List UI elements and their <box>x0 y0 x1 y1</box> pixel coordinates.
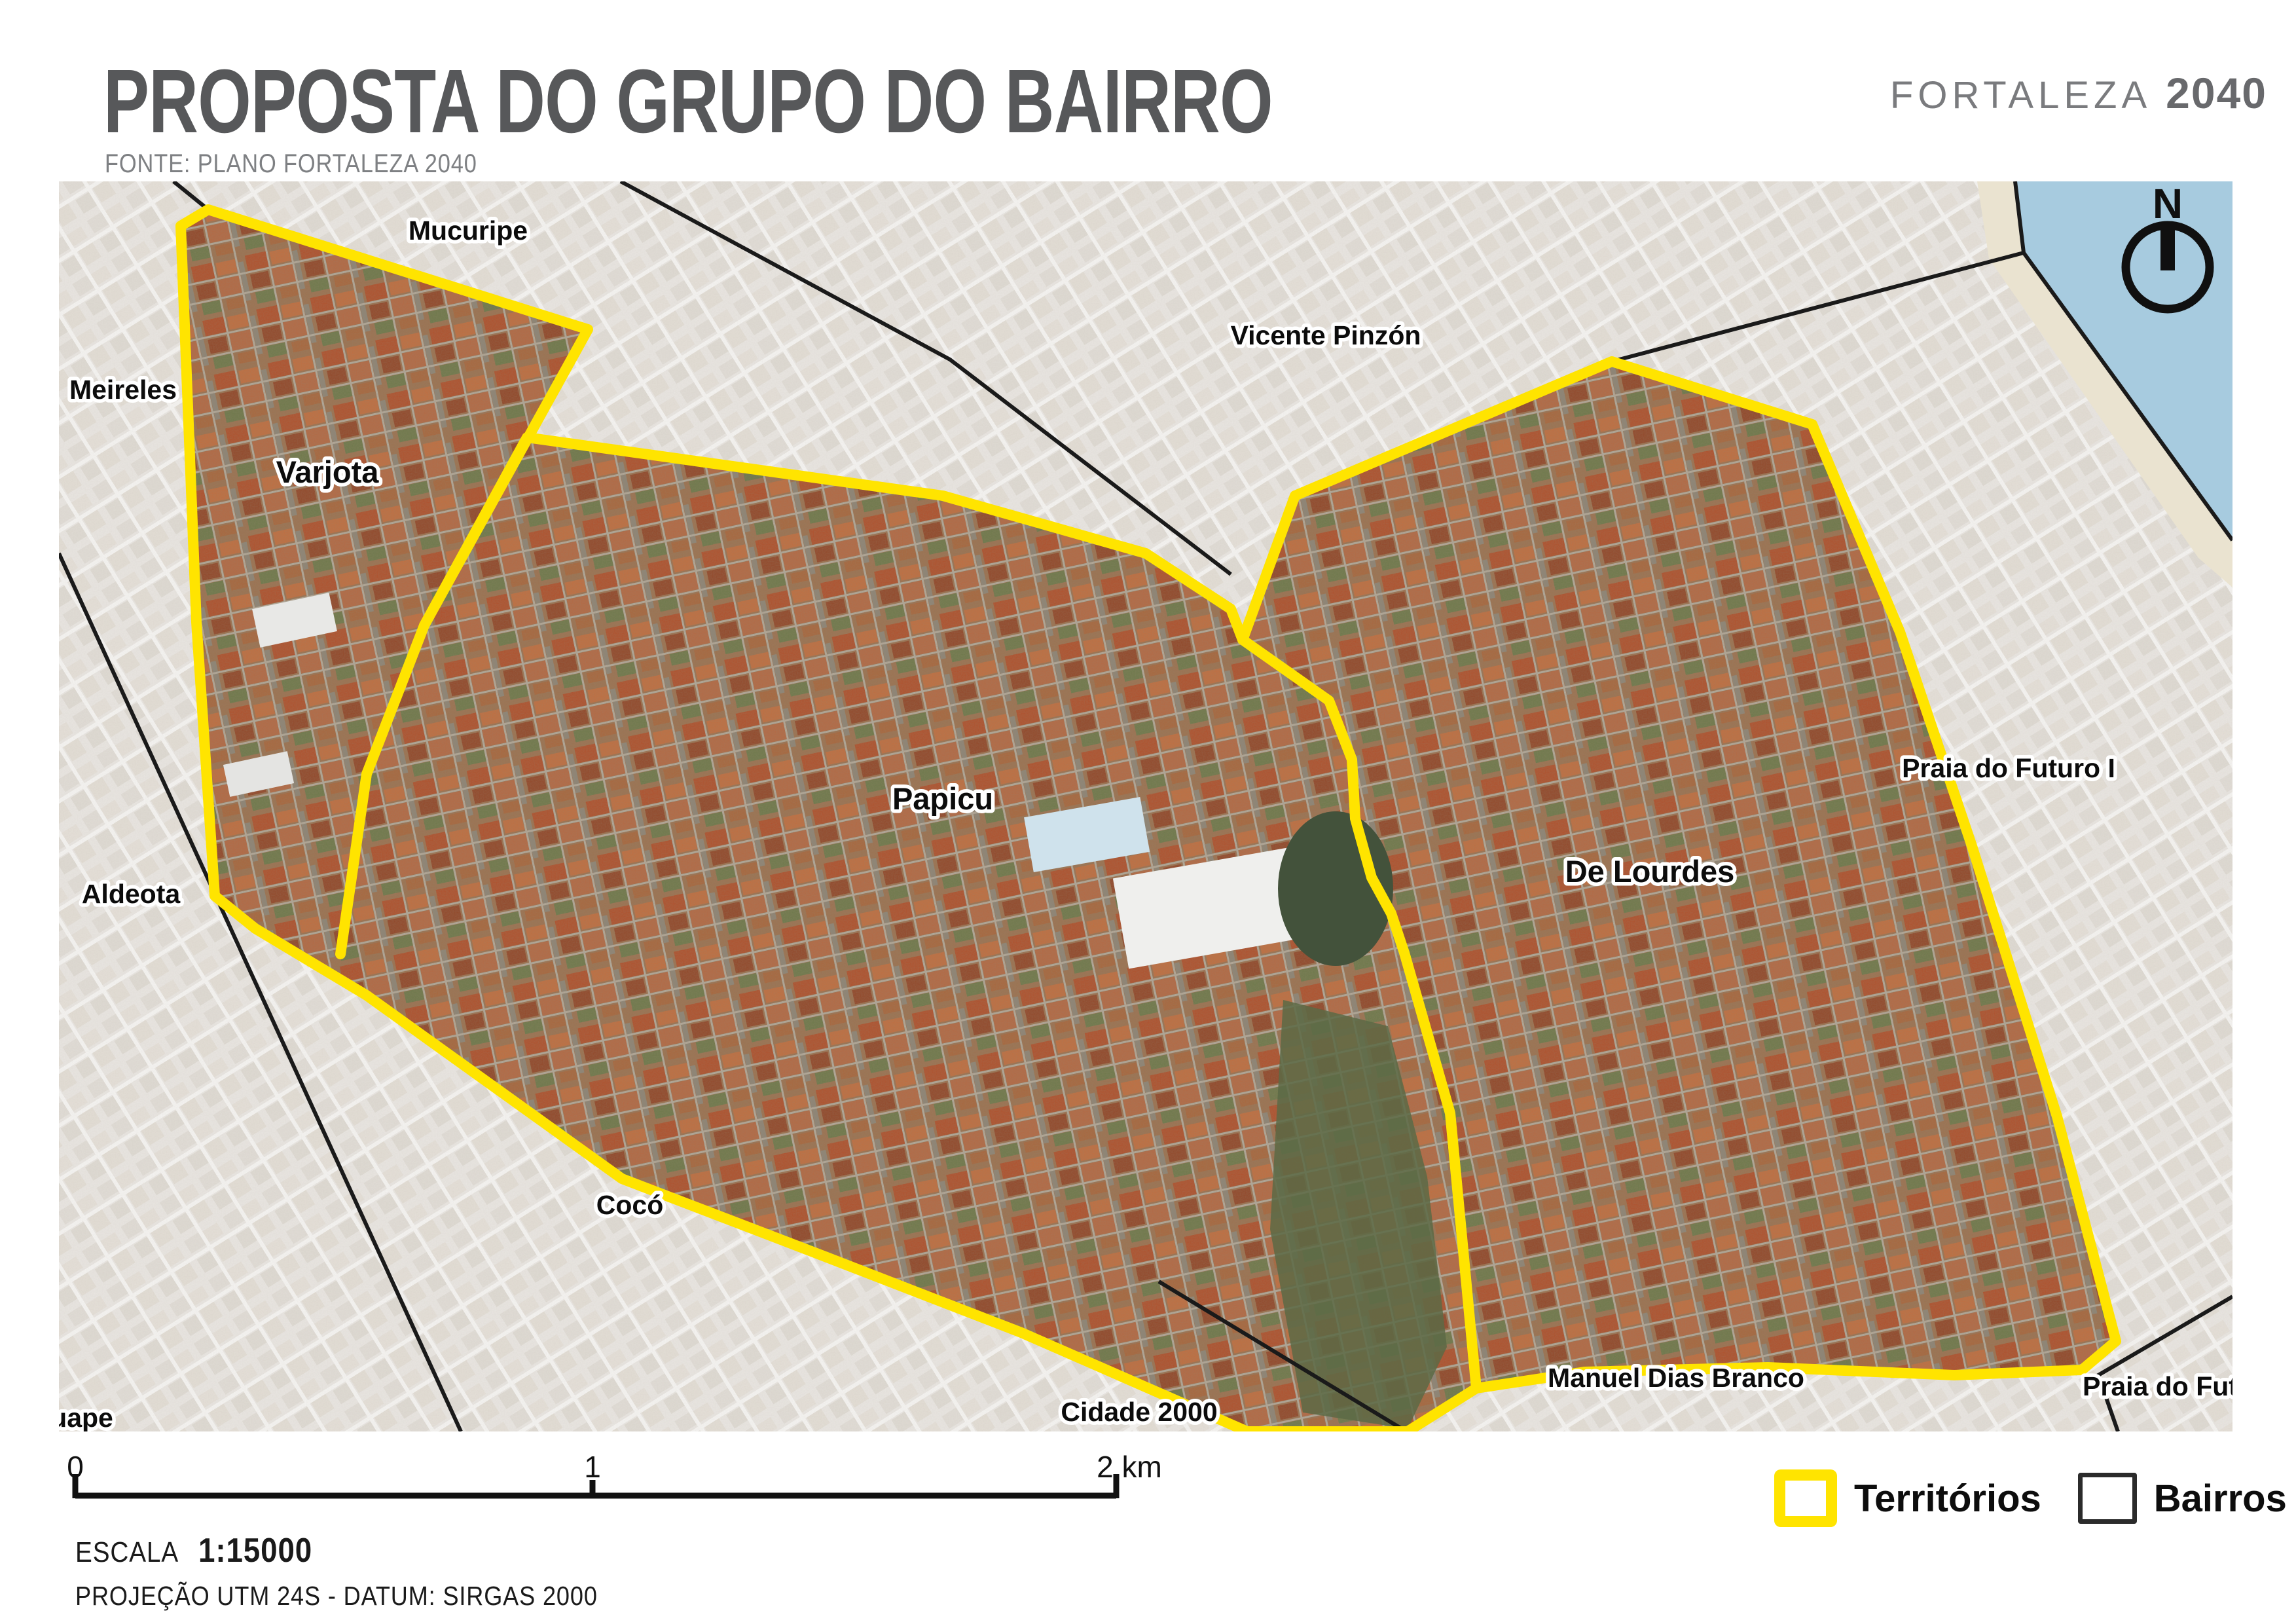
map-canvas: N Mucuripe Meireles Vicente Pinzón Aldeo… <box>59 181 2232 1431</box>
brand-logo: FORTALEZA 2040 <box>1890 68 2267 118</box>
map-label-mucuripe: Mucuripe <box>409 215 528 246</box>
scale-bar: 0 1 2 km <box>52 1438 1165 1510</box>
legend: Territórios Bairros <box>1774 1467 2287 1530</box>
brand-year: 2040 <box>2166 68 2267 118</box>
map-label-papicu: Papicu <box>892 781 993 816</box>
territories-swatch <box>1774 1469 1837 1527</box>
bairros-swatch <box>2078 1473 2137 1524</box>
scale-value: 1:15000 <box>198 1532 312 1570</box>
map-label-meireles: Meireles <box>69 375 177 405</box>
map-label-cidade-2000: Cidade 2000 <box>1061 1397 1217 1427</box>
map-label-coco: Cocó <box>596 1190 664 1220</box>
map-label-praia-do-futuro-i: Praia do Futuro I <box>1902 753 2115 783</box>
scale-text: ESCALA1:15000 <box>75 1531 312 1570</box>
page-source: FONTE: PLANO FORTALEZA 2040 <box>105 149 477 179</box>
map-label-manuel-dias-branco: Manuel Dias Branco <box>1548 1363 1804 1393</box>
map-label-praia-do-futuro-clipped: Praia do Futur <box>2083 1371 2232 1401</box>
scale-label: ESCALA <box>75 1536 179 1568</box>
projection-note: PROJEÇÃO UTM 24S - DATUM: SIRGAS 2000 <box>75 1581 598 1612</box>
scale-tick-2: 2 km <box>1097 1450 1162 1484</box>
map-svg: N Mucuripe Meireles Vicente Pinzón Aldeo… <box>59 181 2232 1431</box>
territories-label: Territórios <box>1854 1477 2041 1521</box>
bairros-label: Bairros <box>2154 1477 2287 1521</box>
scale-tick-1: 1 <box>584 1450 601 1484</box>
north-label: N <box>2153 181 2183 227</box>
map-label-vicente-pinzon: Vicente Pinzón <box>1231 320 1421 350</box>
map-label-aldeota: Aldeota <box>82 879 181 909</box>
map-label-varjota: Varjota <box>276 454 380 489</box>
map-label-de-lourdes: De Lourdes <box>1565 854 1735 889</box>
page-title: PROPOSTA DO GRUPO DO BAIRRO <box>103 52 1273 152</box>
map-label-uape-clipped: uape <box>59 1403 113 1431</box>
brand-name: FORTALEZA <box>1890 73 2151 117</box>
